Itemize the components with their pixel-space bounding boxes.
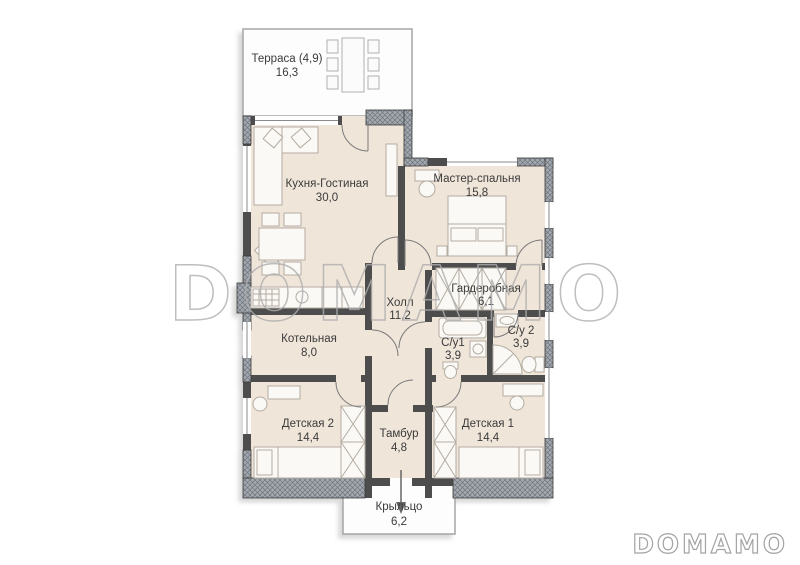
watermark-corner: DOMAMO <box>632 530 788 560</box>
floor-plan-page: Терраса (4,9) 16,3 Кухня-Гостиная 30,0 М… <box>0 0 800 565</box>
kids1-label: Детская 1 <box>462 418 514 430</box>
kids1-area: 14,4 <box>477 432 500 444</box>
kitchen-area: 30,0 <box>316 192 338 204</box>
master-label: Мастер-спальня <box>433 173 520 185</box>
toilet-icon <box>443 362 458 379</box>
master-area: 15,8 <box>466 187 488 199</box>
toilet2-icon <box>522 357 544 373</box>
kitchen-label: Кухня-Гостиная <box>286 178 369 190</box>
floor-plan-canvas: Терраса (4,9) 16,3 Кухня-Гостиная 30,0 М… <box>0 0 800 565</box>
porch-area: 6,2 <box>391 516 407 528</box>
terrace-label: Терраса (4,9) <box>252 53 323 65</box>
kids2-bed-icon <box>254 447 342 478</box>
vestibule-label: Тамбур <box>379 428 418 440</box>
terrace-table-icon <box>327 38 379 92</box>
tv-stand-icon <box>386 144 397 196</box>
porch-label: Крыльцо <box>376 501 423 513</box>
watermark-center: DOMAMO <box>169 249 631 338</box>
bath1-area: 3,9 <box>445 350 461 362</box>
double-bed-icon <box>437 196 517 256</box>
vestibule-area: 4,8 <box>391 442 407 454</box>
terrace-zone <box>243 29 412 116</box>
washer-icon <box>470 341 486 357</box>
bath1-label: С/у1 <box>441 337 465 349</box>
kids1-bed-icon <box>459 447 543 478</box>
kids2-area: 14,4 <box>297 432 320 444</box>
terrace-area: 16,3 <box>276 67 298 79</box>
kids2-wardrobe-icon <box>341 406 365 478</box>
kids1-wardrobe-icon <box>434 407 456 478</box>
bath2-area: 3,9 <box>513 338 529 350</box>
boiler-area: 8,0 <box>301 347 317 359</box>
kids2-label: Детская 2 <box>282 418 334 430</box>
